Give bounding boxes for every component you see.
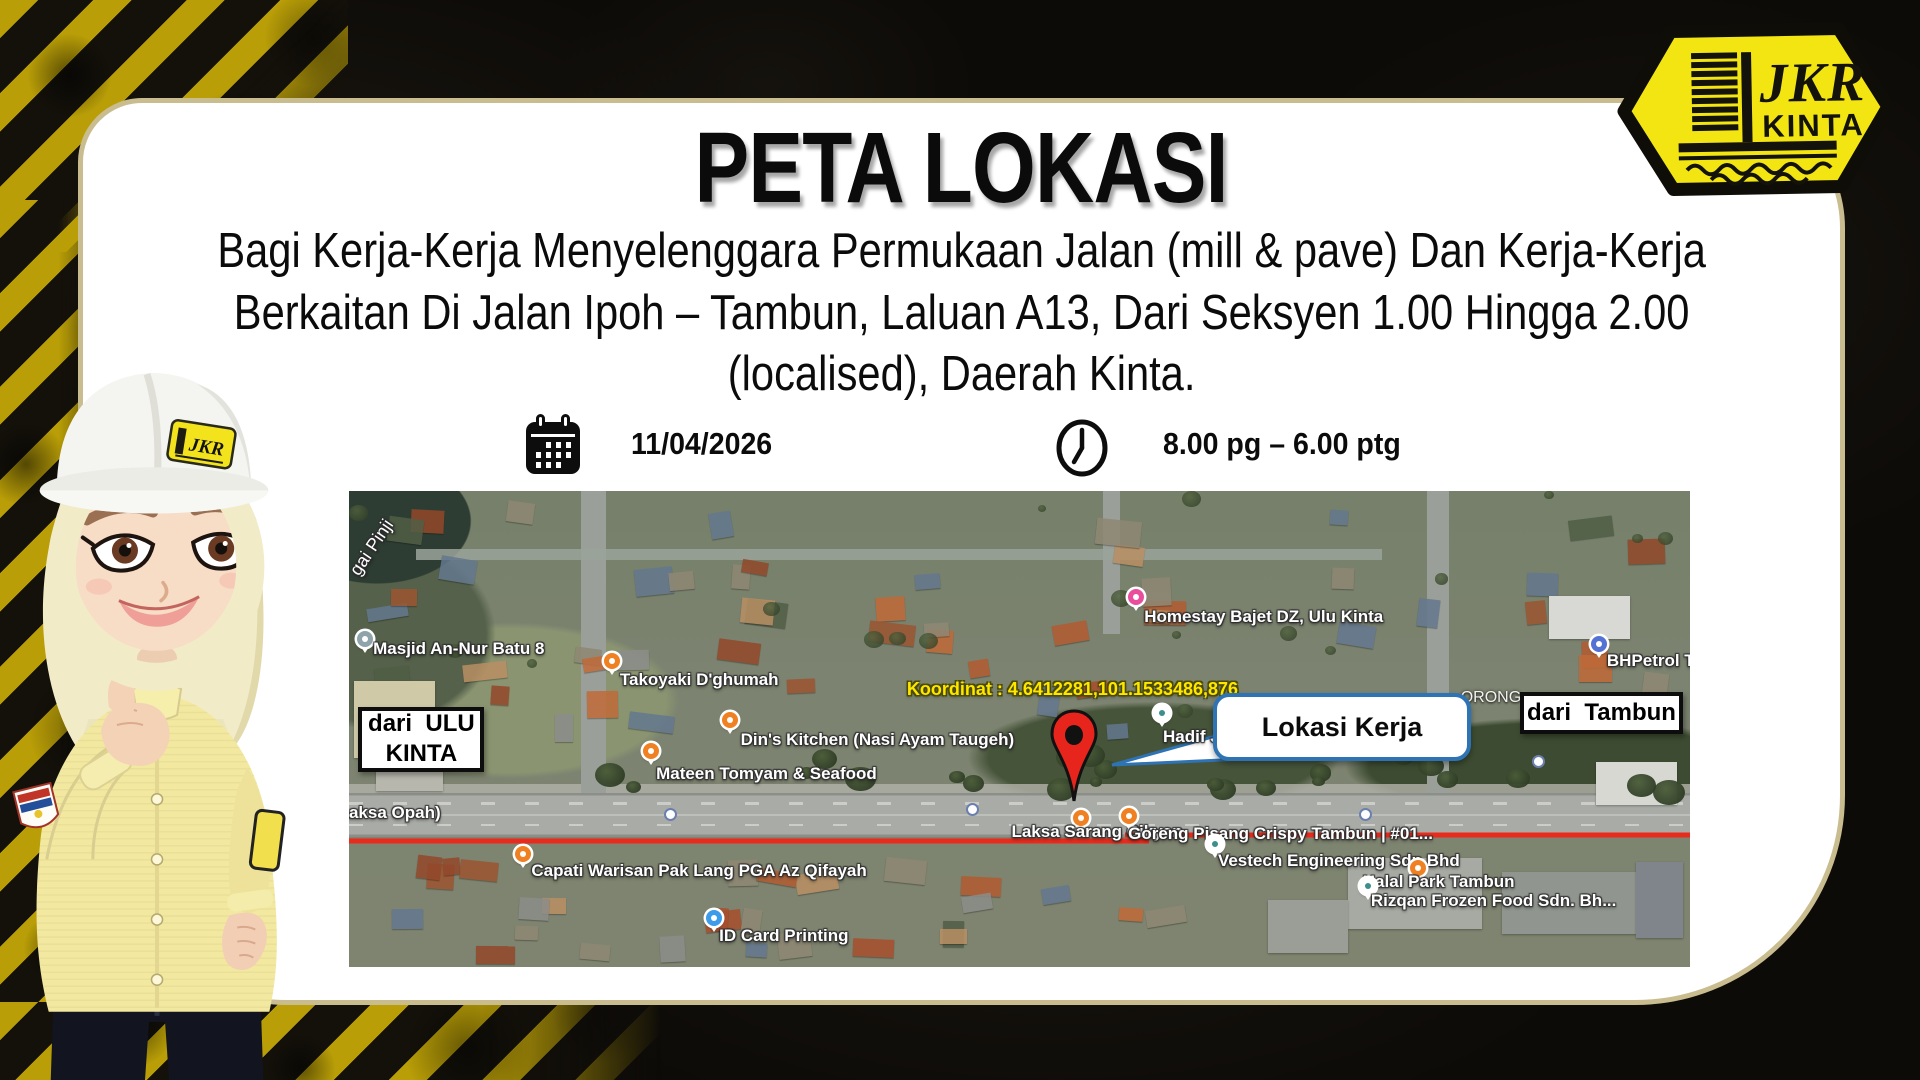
map-label-goreng-pisang: Goreng Pisang Crispy Tambun | #01...: [1128, 825, 1433, 843]
map-pin-takoyaki: [604, 653, 620, 669]
map-label-takoyaki: Takoyaki D'ghumah: [620, 671, 779, 689]
work-date: 11/04/2026: [631, 426, 772, 462]
work-location-pin: [1049, 709, 1099, 805]
map-pin-capati: [515, 846, 531, 862]
clock-icon: [1055, 419, 1109, 477]
map-pin-id-card: [706, 910, 722, 926]
map-label-masjid: Masjid An-Nur Batu 8: [373, 640, 544, 658]
work-location-callout: Lokasi Kerja: [1213, 693, 1472, 762]
logo-jkr-text: JKR: [1758, 51, 1866, 115]
subtitle-line-2: Berkaitan Di Jalan Ipoh – Tambun, Laluan…: [217, 283, 1706, 345]
direction-box-ulu-kinta: dari ULU KINTA: [358, 707, 484, 773]
direction-box-tambun: dari Tambun: [1520, 692, 1684, 734]
map-pin-bhpetrol: [1591, 636, 1607, 652]
logo-kinta-text: KINTA: [1762, 107, 1865, 144]
map-label-mateen: Mateen Tomyam & Seafood: [656, 765, 877, 783]
map-label-rizqan: Rizqan Frozen Food Sdn. Bh...: [1371, 892, 1617, 910]
subtitle-line-1: Bagi Kerja-Kerja Menyelenggara Permukaan…: [217, 221, 1706, 283]
coordinate-label: Koordinat : 4.6412281,101.1533486,876: [907, 679, 1238, 700]
mascot-sleeve-badge: [250, 810, 285, 871]
jkr-kinta-logo: JKR KINTA: [1612, 12, 1899, 207]
page-title: PETA LOKASI: [695, 117, 1228, 219]
map-label-bhpetrol: BHPetrol Tam: [1607, 652, 1690, 670]
location-map: Koordinat : 4.6412281,101.1533486,876 Lo…: [349, 491, 1690, 967]
slide: PETA LOKASI Bagi Kerja-Kerja Menyelengga…: [0, 0, 1920, 1080]
mascot-hard-hat: JKR: [40, 373, 269, 513]
map-pin-mateen: [643, 743, 659, 759]
calendar-icon: [523, 413, 583, 477]
map-pin-hadif: [1154, 705, 1170, 721]
map-label-dins-kitchen: Din's Kitchen (Nasi Ayam Taugeh): [741, 731, 1015, 749]
map-label-laksa-opah: (Laksa Opah): [349, 804, 441, 822]
content-card: PETA LOKASI Bagi Kerja-Kerja Menyelengga…: [78, 98, 1845, 1005]
work-hours: 8.00 pg – 6.00 ptg: [1163, 426, 1401, 462]
map-label-homestay: Homestay Bajet DZ, Ulu Kinta: [1144, 608, 1383, 626]
subtitle: Bagi Kerja-Kerja Menyelenggara Permukaan…: [217, 221, 1706, 406]
mascot-hat-jkr-badge: JKR: [167, 419, 237, 469]
mascot-engineer: JKR: [0, 358, 298, 1080]
map-pin-homestay: [1128, 589, 1144, 605]
map-label-halal-park: Halal Park Tambun: [1363, 873, 1515, 891]
subtitle-line-3: (localised), Daerah Kinta.: [217, 344, 1706, 406]
map-label-id-card: ID Card Printing: [719, 927, 848, 945]
map-label-capati: Capati Warisan Pak Lang PGA Az Qifayah: [531, 862, 866, 880]
